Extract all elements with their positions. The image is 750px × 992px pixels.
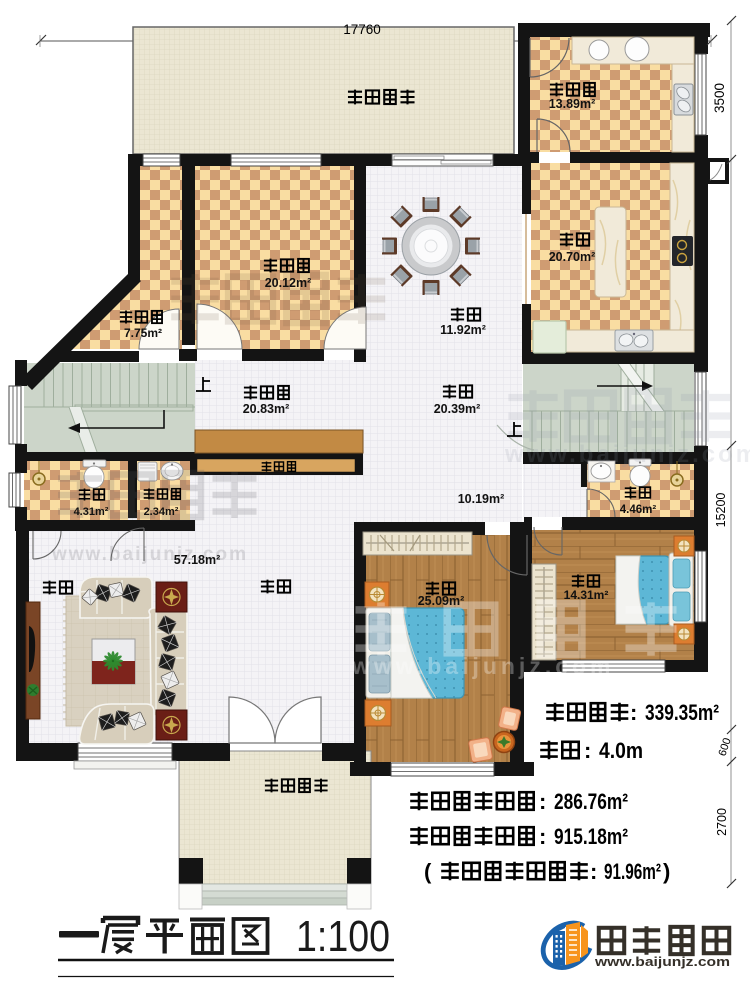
- svg-text:www.baijunjz.com: www.baijunjz.com: [594, 954, 730, 969]
- svg-text:915.18m²: 915.18m²: [554, 824, 628, 849]
- svg-text:1:100: 1:100: [296, 912, 390, 961]
- svg-text:(: (: [424, 859, 432, 884]
- svg-text:20.70m²: 20.70m²: [549, 250, 596, 264]
- svg-text:4.46m²: 4.46m²: [620, 504, 657, 516]
- svg-text:339.35m²: 339.35m²: [645, 700, 719, 725]
- svg-text:4.0m: 4.0m: [599, 738, 643, 763]
- svg-text:11.92m²: 11.92m²: [440, 323, 486, 337]
- svg-text:4.31m²: 4.31m²: [74, 506, 109, 518]
- svg-text:91.96m²: 91.96m²: [604, 859, 661, 884]
- svg-text:2700: 2700: [715, 808, 729, 836]
- svg-text:20.12m²: 20.12m²: [265, 276, 312, 290]
- svg-text:57.18m²: 57.18m²: [174, 553, 221, 567]
- svg-text::: :: [539, 824, 546, 849]
- svg-text:286.76m²: 286.76m²: [554, 789, 628, 814]
- svg-text:13.89m²: 13.89m²: [549, 97, 596, 111]
- svg-text::: :: [584, 738, 591, 763]
- svg-text:2.34m²: 2.34m²: [144, 506, 179, 518]
- svg-text:14.31m²: 14.31m²: [564, 588, 609, 602]
- svg-text:17760: 17760: [343, 22, 381, 37]
- svg-text:7.75m²: 7.75m²: [124, 326, 162, 340]
- svg-text:10.19m²: 10.19m²: [458, 492, 505, 506]
- svg-text:3500: 3500: [712, 83, 727, 113]
- svg-text::: :: [630, 700, 637, 725]
- svg-text:20.39m²: 20.39m²: [434, 402, 481, 416]
- svg-text:15200: 15200: [714, 493, 728, 528]
- svg-text::: :: [590, 859, 597, 884]
- svg-text:25.09m²: 25.09m²: [418, 594, 465, 608]
- svg-text::: :: [539, 789, 546, 814]
- svg-text:www.baijunjz.com: www.baijunjz.com: [504, 441, 750, 468]
- svg-text:www.baijunjz.com: www.baijunjz.com: [351, 653, 615, 679]
- svg-text:20.83m²: 20.83m²: [243, 402, 290, 416]
- svg-text:): ): [663, 859, 670, 884]
